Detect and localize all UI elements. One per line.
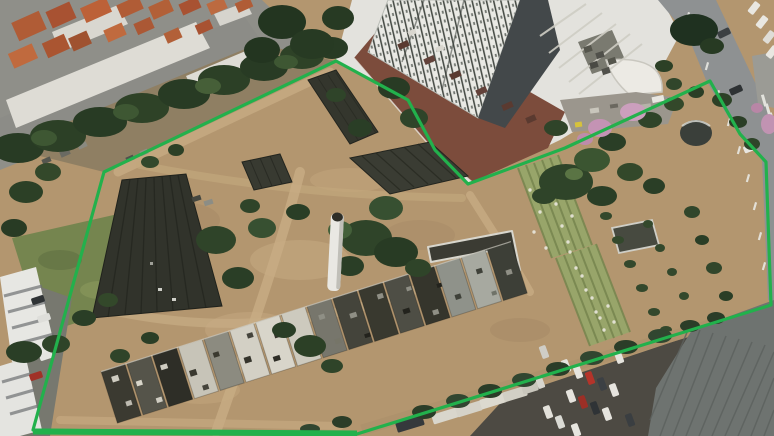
aerial-photo-stage — [0, 0, 774, 436]
boundary-bottom-edge — [33, 432, 357, 434]
aerial-photo — [0, 0, 774, 436]
